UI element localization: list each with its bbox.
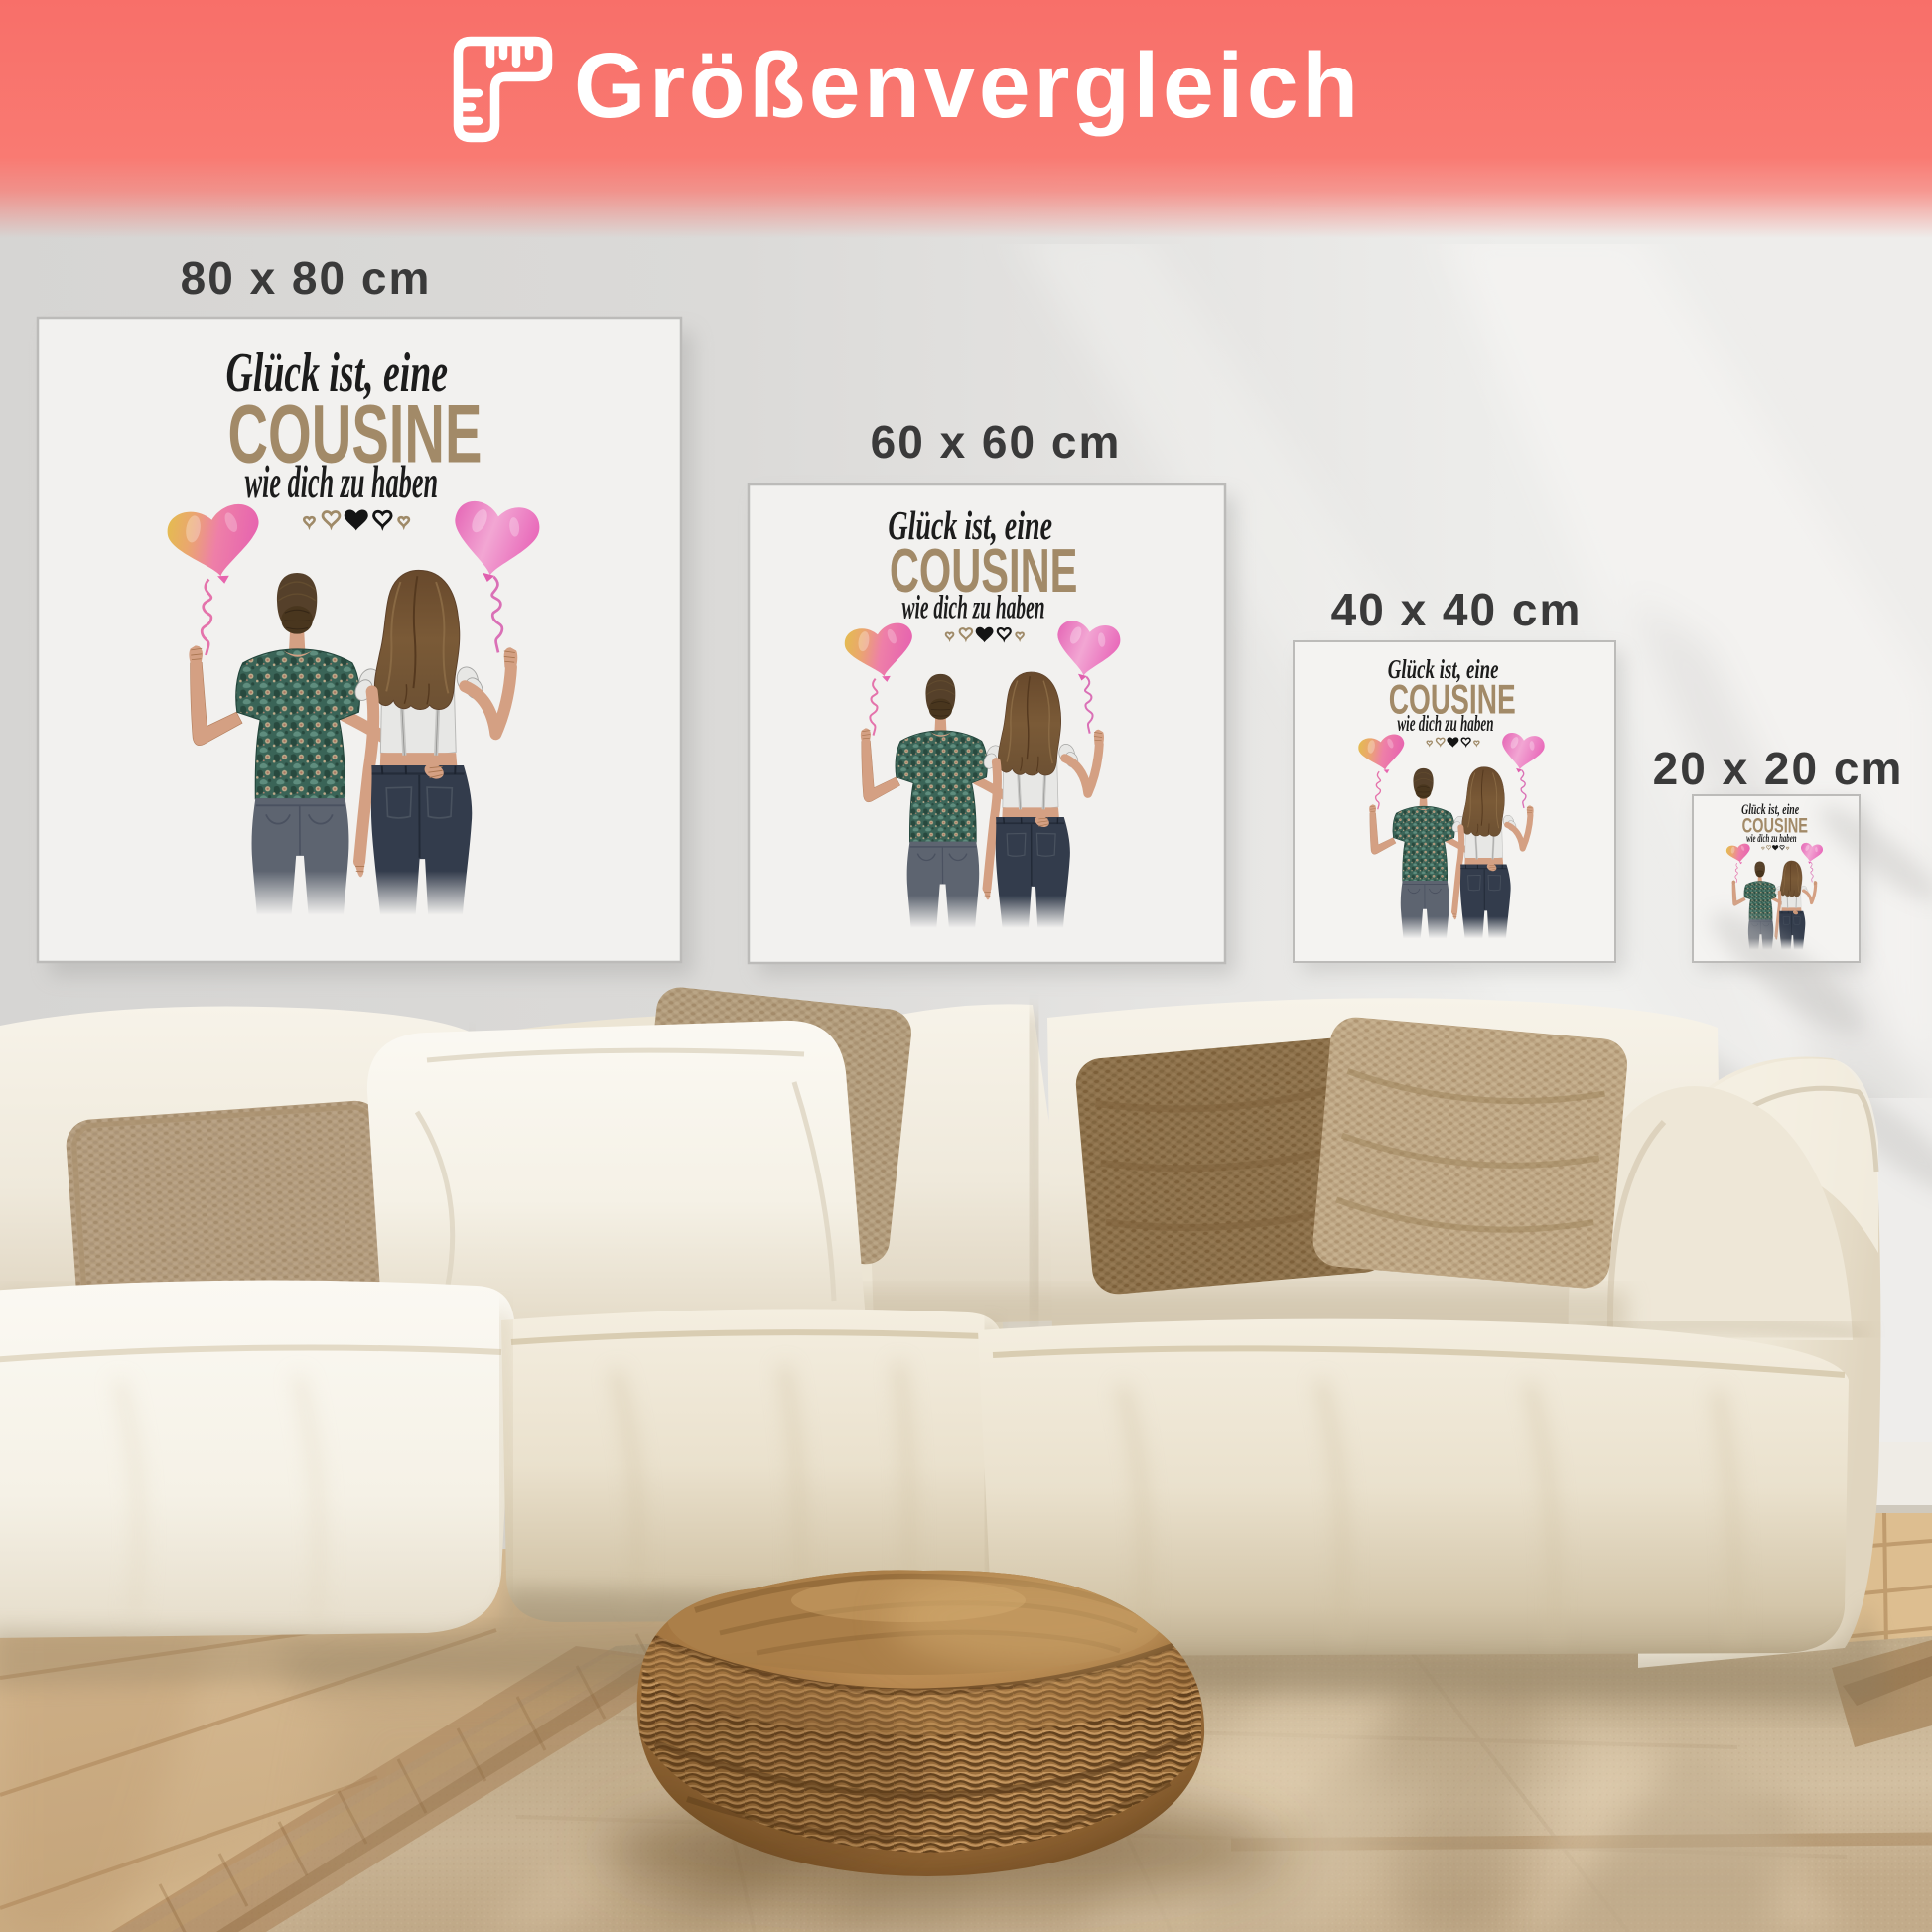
svg-text:Größenvergleich: Größenvergleich — [574, 34, 1358, 137]
svg-text:60 x 60 cm: 60 x 60 cm — [871, 416, 1122, 468]
svg-text:40 x 40 cm: 40 x 40 cm — [1331, 584, 1583, 635]
svg-text:80 x 80 cm: 80 x 80 cm — [181, 252, 432, 304]
svg-text:20 x 20 cm: 20 x 20 cm — [1653, 743, 1904, 794]
